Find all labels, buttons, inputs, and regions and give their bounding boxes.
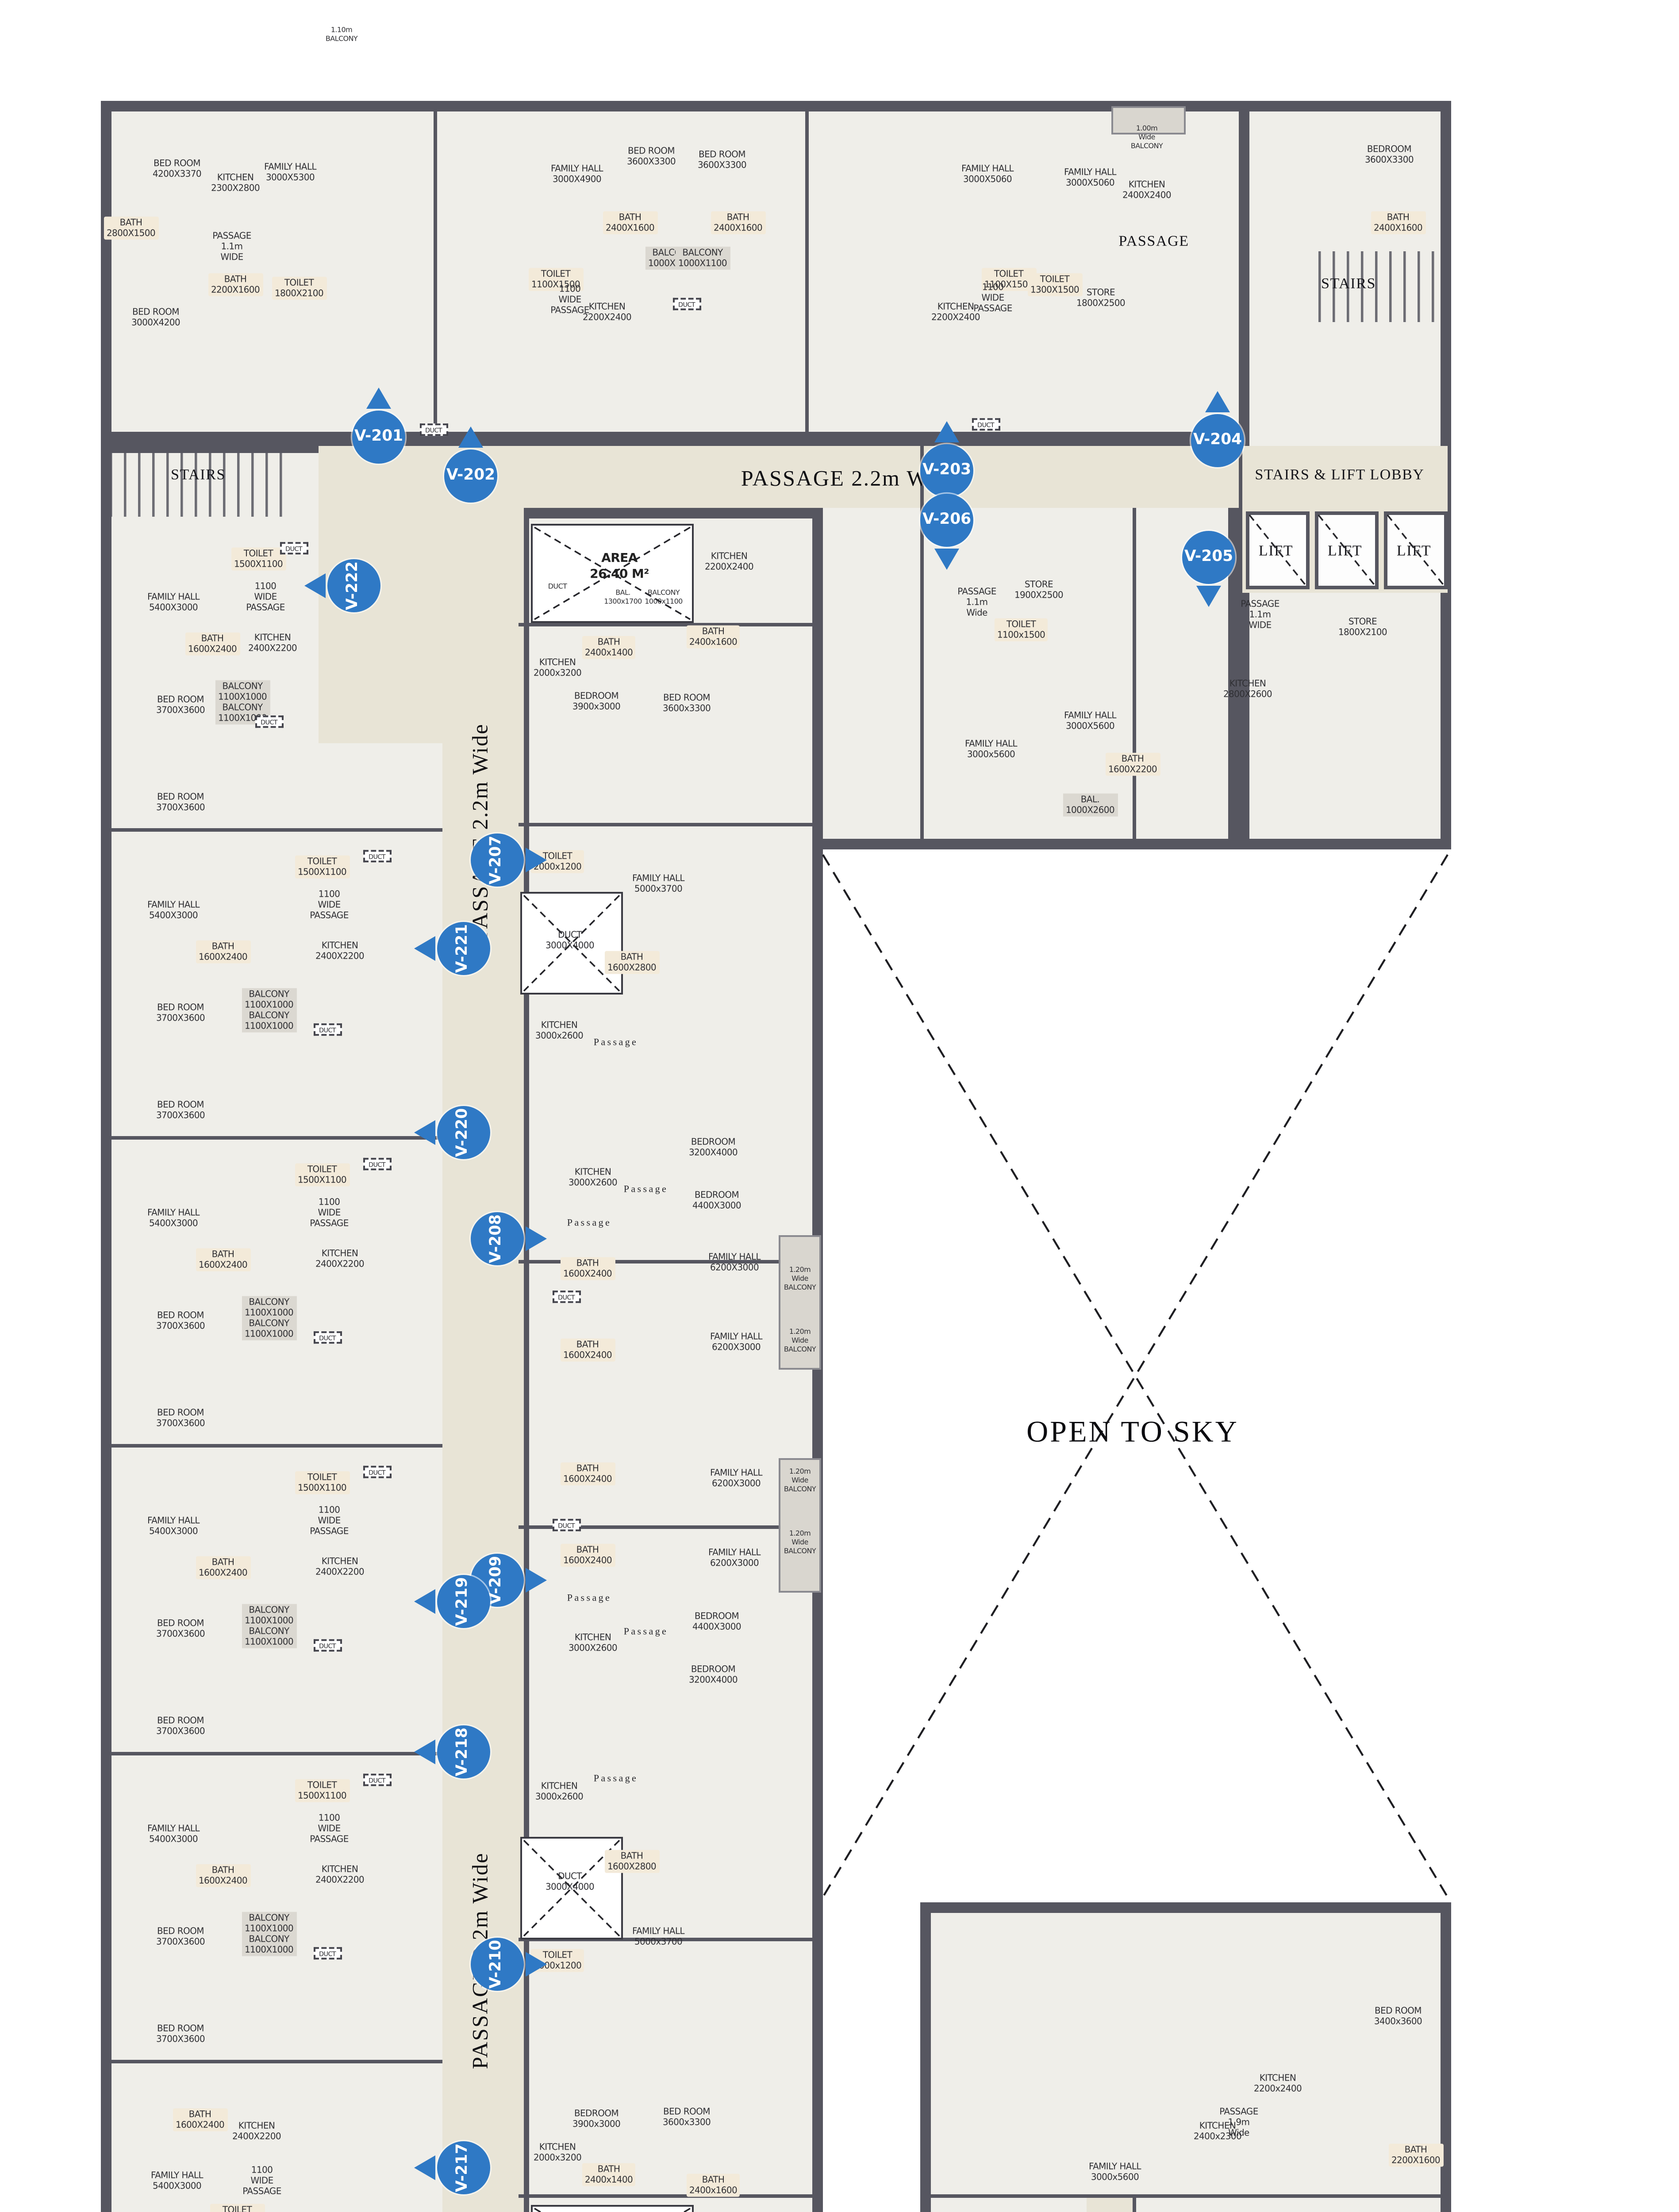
marker-arrow-left-icon (414, 1740, 435, 1764)
room-label: KITCHEN 3000x2600 (535, 1782, 583, 1804)
marker-arrow-left-icon (414, 936, 435, 961)
room-label: FAMILY HALL 6200X3000 (710, 1333, 762, 1354)
room-label: BALCONY 1100X1000 (242, 1625, 296, 1649)
room-label: BED ROOM 3700X3600 (156, 1311, 205, 1333)
unit-marker-v-219: V-219 (437, 1575, 490, 1628)
marker-arrow-left-icon (414, 1120, 435, 1145)
unit-marker-v-204: V-204 (1191, 414, 1244, 467)
room-label: BED ROOM 3700X3600 (156, 695, 205, 717)
room-label: Passage (594, 1774, 638, 1786)
room-label: 1100 WIDE PASSAGE (246, 582, 285, 614)
room-label: BALCONY 1100X1000 (242, 1317, 296, 1341)
room-label: BATH 2800X1500 (104, 217, 158, 240)
room-label: AREA 26.40 M² (590, 551, 649, 581)
room-label: DUCT (363, 1466, 391, 1479)
room-label: FAMILY HALL 3000x5600 (1089, 2162, 1141, 2184)
room-label: KITCHEN 2000x3200 (534, 2143, 581, 2165)
wing-bottom-right (920, 1902, 1451, 2212)
corridor-label: STAIRS & LIFT LOBBY (1255, 465, 1424, 483)
room-label: BATH 2400x1400 (582, 636, 635, 660)
marker-label: V-217 (455, 2143, 473, 2192)
unit-marker-v-207: V-207 (471, 833, 524, 887)
corridor-label: LIFT (1397, 541, 1431, 559)
unit-marker-v-221: V-221 (437, 922, 490, 975)
marker-label: V-218 (455, 1728, 473, 1776)
room-label: 1100 WIDE PASSAGE (242, 2166, 281, 2198)
room-label: KITCHEN 2400X2200 (315, 941, 364, 963)
room-label: FAMILY HALL 3000X5600 (1064, 711, 1116, 733)
room-label: DUCT (548, 583, 567, 592)
room-label: BED ROOM 3700X3600 (156, 1619, 205, 1641)
marker-label: V-207 (488, 836, 506, 884)
room-label: FAMILY HALL 5400X3000 (151, 2171, 203, 2193)
room-label: BATH 2400X1600 (711, 211, 765, 235)
room-label: PASSAGE 1.1m WIDE (1241, 599, 1279, 632)
room-label: 1.20m Wide BALCONY (784, 1267, 816, 1293)
marker-arrow-up-icon (458, 426, 483, 448)
room-label: BEDROOM 3600X3300 (1365, 145, 1414, 167)
open-to-sky-void (823, 849, 1451, 1902)
room-label: TOILET 1800X2100 (272, 277, 326, 300)
room-label: BATH 1600X2400 (196, 1248, 250, 1272)
marker-arrow-right-icon (526, 1952, 547, 1977)
room-label: FAMILY HALL 5400X3000 (147, 1209, 200, 1230)
room-label: FAMILY HALL 5000x3700 (632, 1927, 684, 1949)
marker-arrow-up-icon (934, 421, 959, 442)
room-label: BATH 1600X2400 (173, 2108, 227, 2132)
room-label: 1100 WIDE PASSAGE (973, 283, 1012, 315)
marker-label: V-220 (455, 1108, 473, 1157)
room-label: BATH 1600X2400 (561, 1339, 615, 1362)
unit-marker-v-206: V-206 (920, 494, 973, 547)
room-label: FAMILY HALL 3000x5600 (965, 740, 1017, 761)
room-label: FAMILY HALL 3000X5060 (961, 165, 1014, 186)
room-label: DUCT (553, 1290, 580, 1304)
room-label: DUCT (255, 715, 283, 729)
marker-label: V-210 (488, 1940, 506, 1989)
unit-marker-v-222: V-222 (327, 559, 380, 612)
room-label: STORE 1800X2500 (1076, 288, 1125, 310)
room-label: 1100 WIDE PASSAGE (310, 890, 349, 922)
room-label: BED ROOM 3600X3300 (627, 147, 676, 169)
room-label: BATH 2400x1400 (582, 2163, 635, 2187)
corridor-label: PASSAGE (1118, 231, 1189, 250)
unit-marker-v-202: V-202 (444, 449, 497, 503)
room-label: BED ROOM 3700X3600 (156, 1101, 205, 1122)
corridor-label: LIFT (1328, 541, 1362, 559)
courtyard-top-left (319, 508, 442, 743)
room-label: BALCONY 1100X1000 (242, 1912, 296, 1935)
room-label: FAMILY HALL 3000X5060 (1064, 168, 1116, 190)
room-label: TOILET 1500X1100 (231, 548, 285, 571)
room-label: KITCHEN 2400X2200 (315, 1249, 364, 1271)
room-label: DUCT (673, 298, 700, 311)
room-label: BED ROOM 4200X3370 (153, 159, 201, 181)
marker-arrow-down-icon (1196, 586, 1221, 607)
marker-arrow-up-icon (366, 388, 391, 409)
room-label: TOILET 1100x1500 (995, 618, 1048, 642)
room-label: DUCT (314, 1947, 341, 1960)
unit-marker-v-203: V-203 (920, 444, 973, 497)
room-label: KITCHEN 2200X2400 (583, 303, 631, 324)
room-label: KITCHEN 2400x2300 (1194, 2122, 1241, 2143)
room-label: DUCT (363, 1774, 391, 1787)
room-label: BATH 1600X2400 (196, 1864, 250, 1888)
room-label: BATH 1600X2400 (561, 1257, 615, 1281)
room-label: DUCT (314, 1639, 341, 1652)
room-label: BED ROOM 3700X3600 (156, 2024, 205, 2046)
room-label: DUCT (314, 1023, 341, 1037)
unit-marker-v-201: V-201 (352, 411, 405, 464)
room-label: BED ROOM 3600X3300 (698, 150, 746, 172)
marker-label: V-219 (455, 1577, 473, 1626)
room-label: DUCT (280, 542, 307, 555)
room-label: BED ROOM 3700X3600 (156, 1717, 205, 1738)
room-label: BATH 1600X2400 (561, 1544, 615, 1567)
room-label: PASSAGE 1.1m Wide (957, 587, 996, 619)
marker-label: V-208 (488, 1214, 506, 1263)
room-label: KITCHEN 2400X2200 (232, 2122, 281, 2143)
room-label: BED ROOM 3700X3600 (156, 1927, 205, 1949)
room-label: BAL. 1300x1700 (604, 590, 642, 607)
marker-arrow-right-icon (526, 848, 547, 872)
unit-marker-v-217: V-217 (437, 2141, 490, 2194)
unit-marker-v-210: V-210 (471, 1938, 524, 1991)
room-label: BALCONY 1100X1000 (242, 1296, 296, 1320)
room-label: 1.00m Wide BALCONY (1131, 125, 1163, 151)
room-label: BED ROOM 3400x3600 (1374, 2007, 1422, 2028)
corridor-label: LIFT (1259, 541, 1293, 559)
corridor-label: STAIRS (171, 465, 226, 483)
room-label: BED ROOM 3000X4200 (131, 308, 180, 330)
room-label: FAMILY HALL 5400X3000 (147, 593, 200, 614)
room-label: BALCONY 1000X1100 (676, 247, 730, 270)
room-label: FAMILY HALL 3000X4900 (551, 165, 603, 186)
room-label: 1.10m BALCONY (326, 27, 357, 44)
marker-label: V-202 (446, 467, 495, 485)
room-label: BED ROOM 3700X3600 (156, 793, 205, 814)
room-label: BED ROOM 3600x3300 (663, 2108, 711, 2129)
marker-arrow-left-icon (414, 2155, 435, 2180)
room-label: TOILET 1500X1100 (295, 1471, 349, 1495)
open-to-sky-label: OPEN TO SKY (1026, 1415, 1239, 1452)
marker-arrow-up-icon (1205, 391, 1230, 412)
marker-label: V-205 (1184, 549, 1233, 566)
room-label: TOILET 1500X1100 (295, 1779, 349, 1803)
marker-label: V-206 (922, 511, 971, 529)
room-label: 1100 WIDE PASSAGE (310, 1505, 349, 1538)
room-label: BATH 2400X1600 (1371, 211, 1425, 235)
room-label: BATH 1600X2400 (561, 1463, 615, 1486)
room-label: TOILET 1500X1100 (210, 2204, 264, 2212)
marker-label: V-209 (488, 1556, 506, 1605)
room-label: BATH 1600X2400 (185, 633, 239, 656)
marker-label: V-222 (345, 561, 363, 610)
room-label: BALCONY 1000x1100 (645, 590, 683, 607)
room-label: STORE 1900X2500 (1014, 580, 1063, 602)
room-label: BED ROOM 3600x3300 (663, 694, 711, 715)
room-label: FAMILY HALL 6200X3000 (710, 1469, 762, 1490)
room-label: PASSAGE 1.1m WIDE (212, 231, 251, 264)
room-label: BATH 2400x1600 (687, 2174, 740, 2197)
room-label: 1.20m Wide BALCONY (784, 1329, 816, 1355)
room-label: 1.20m Wide BALCONY (784, 1468, 816, 1494)
room-label: BATH 1600X2800 (605, 951, 659, 975)
area-shaft-bottom (531, 2205, 694, 2212)
room-label: FAMILY HALL 6200X3000 (708, 1253, 761, 1275)
room-label: Passage (567, 1219, 612, 1231)
room-label: TOILET 1500X1100 (295, 1164, 349, 1187)
room-label: 1.20m Wide BALCONY (784, 1530, 816, 1556)
room-label: BALCONY 1100X1000 (242, 1010, 296, 1033)
room-label: FAMILY HALL 6200X3000 (708, 1548, 761, 1570)
unit-marker-v-218: V-218 (437, 1725, 490, 1778)
room-label: KITCHEN 3000x2600 (535, 1021, 583, 1043)
unit-marker-v-220: V-220 (437, 1106, 490, 1159)
marker-arrow-down-icon (934, 549, 959, 570)
room-label: BATH 2400x1600 (687, 626, 740, 649)
room-label: BEDROOM 3200X4000 (689, 1665, 738, 1687)
marker-arrow-left-icon (414, 1589, 435, 1614)
room-label: BALCONY 1100X1000 (242, 988, 296, 1012)
room-label: DUCT 3000X4000 (546, 1872, 594, 1894)
room-label: FAMILY HALL 5400X3000 (147, 901, 200, 922)
corridor-label: PASSAGE 2.2m Wide (468, 723, 495, 940)
room-label: DUCT (314, 1331, 341, 1344)
corridor-label: STAIRS (1321, 274, 1376, 292)
unit-marker-v-205: V-205 (1182, 531, 1235, 584)
room-label: KITCHEN 2000x3200 (534, 658, 581, 680)
room-label: KITCHEN 3000X2600 (569, 1168, 617, 1190)
room-label: BEDROOM 3900x3000 (572, 692, 620, 714)
room-label: BALCONY 1100X1000 (242, 1933, 296, 1957)
room-label: 1100 WIDE PASSAGE (310, 1813, 349, 1846)
room-label: BATH 2400X1600 (603, 211, 657, 235)
marker-arrow-right-icon (526, 1226, 547, 1251)
room-label: 1100 WIDE PASSAGE (310, 1198, 349, 1230)
marker-label: V-201 (354, 428, 403, 446)
room-label: TOILET 1500X1100 (295, 856, 349, 879)
room-label: FAMILY HALL 5000x3700 (632, 874, 684, 896)
marker-label: V-204 (1193, 432, 1242, 449)
room-label: BATH 1600X2400 (196, 1556, 250, 1580)
marker-arrow-right-icon (526, 1568, 547, 1593)
room-label: KITCHEN 3000X2600 (569, 1633, 617, 1655)
unit-marker-v-208: V-208 (471, 1212, 524, 1265)
room-label: DUCT (972, 418, 999, 431)
room-label: KITCHEN 2400X2400 (1122, 180, 1171, 202)
room-label: KITCHEN 2800X2600 (1223, 680, 1272, 701)
marker-arrow-left-icon (304, 573, 326, 598)
room-label: BALCONY 1100X1000 (242, 1604, 296, 1628)
room-label: Passage (624, 1628, 669, 1640)
room-label: BEDROOM 4400X3000 (692, 1612, 741, 1634)
room-label: FAMILY HALL 5400X3000 (147, 1517, 200, 1538)
room-label: KITCHEN 2200X2400 (931, 303, 980, 324)
room-label: BED ROOM 3700X3600 (156, 1409, 205, 1430)
room-label: DUCT (553, 1519, 580, 1532)
room-label: BED ROOM 3700X3600 (156, 1003, 205, 1025)
room-label: BEDROOM 3200X4000 (689, 1138, 738, 1160)
room-label: TOILET 1300X1500 (1028, 273, 1082, 297)
room-label: BEDROOM 4400X3000 (692, 1191, 741, 1213)
room-label: Passage (594, 1038, 638, 1050)
room-label: STORE 1800X2100 (1338, 618, 1387, 639)
room-label: KITCHEN 2300X2800 (211, 173, 260, 195)
room-label: FAMILY HALL 5400X3000 (147, 1824, 200, 1846)
room-label: BATH 1600X2800 (605, 1850, 659, 1874)
room-label: DUCT 3000X4000 (546, 931, 594, 952)
room-label: BEDROOM 3900x3000 (572, 2109, 620, 2131)
room-label: BATH 1600X2200 (1106, 753, 1160, 776)
room-label: KITCHEN 2400X2200 (315, 1865, 364, 1887)
room-label: KITCHEN 2400X2200 (248, 634, 297, 655)
room-label: DUCT (363, 1158, 391, 1171)
room-label: KITCHEN 2400X2200 (315, 1557, 364, 1579)
room-label: BALCONY 1100X1000 (215, 680, 269, 704)
room-label: BATH 2200X1600 (1389, 2144, 1443, 2167)
room-label: BATH 1600X2400 (196, 941, 250, 964)
room-label: KITCHEN 2200X2400 (705, 552, 753, 574)
room-label: BATH 2200X1600 (208, 273, 262, 297)
marker-label: V-203 (922, 462, 971, 480)
room-label: FAMILY HALL 3000X5300 (264, 163, 316, 184)
room-label: Passage (624, 1185, 669, 1197)
marker-label: V-221 (455, 924, 473, 973)
floor-plan: OPEN TO SKY PASSAGE 2.2m WidePASSAGE 2.2… (0, 0, 1679, 2212)
room-label: DUCT (420, 423, 447, 437)
room-label: BAL. 1000X2600 (1063, 794, 1117, 817)
room-label: Passage (567, 1594, 612, 1606)
room-label: DUCT (363, 850, 391, 863)
room-label: KITCHEN 2200x2400 (1254, 2074, 1302, 2096)
